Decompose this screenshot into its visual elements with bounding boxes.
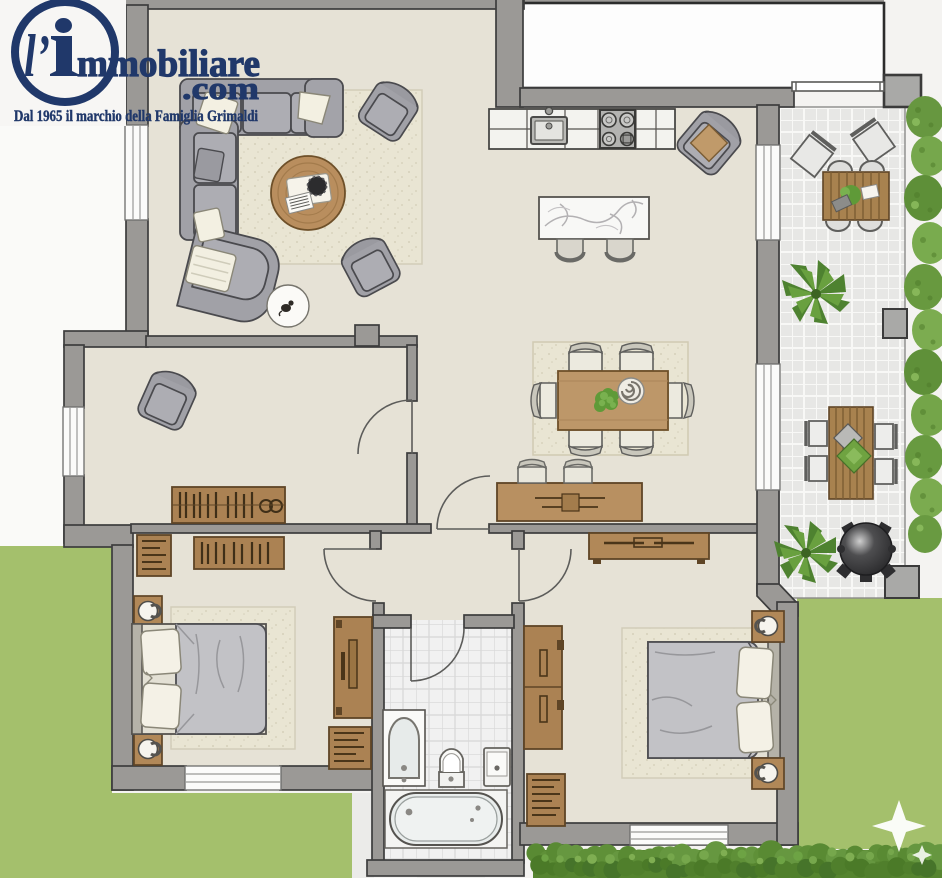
svg-text:.com: .com <box>182 70 259 106</box>
svg-text:l’: l’ <box>24 23 50 89</box>
svg-text:Dal 1965 il marchio della Fami: Dal 1965 il marchio della Famiglia Grima… <box>14 108 259 125</box>
